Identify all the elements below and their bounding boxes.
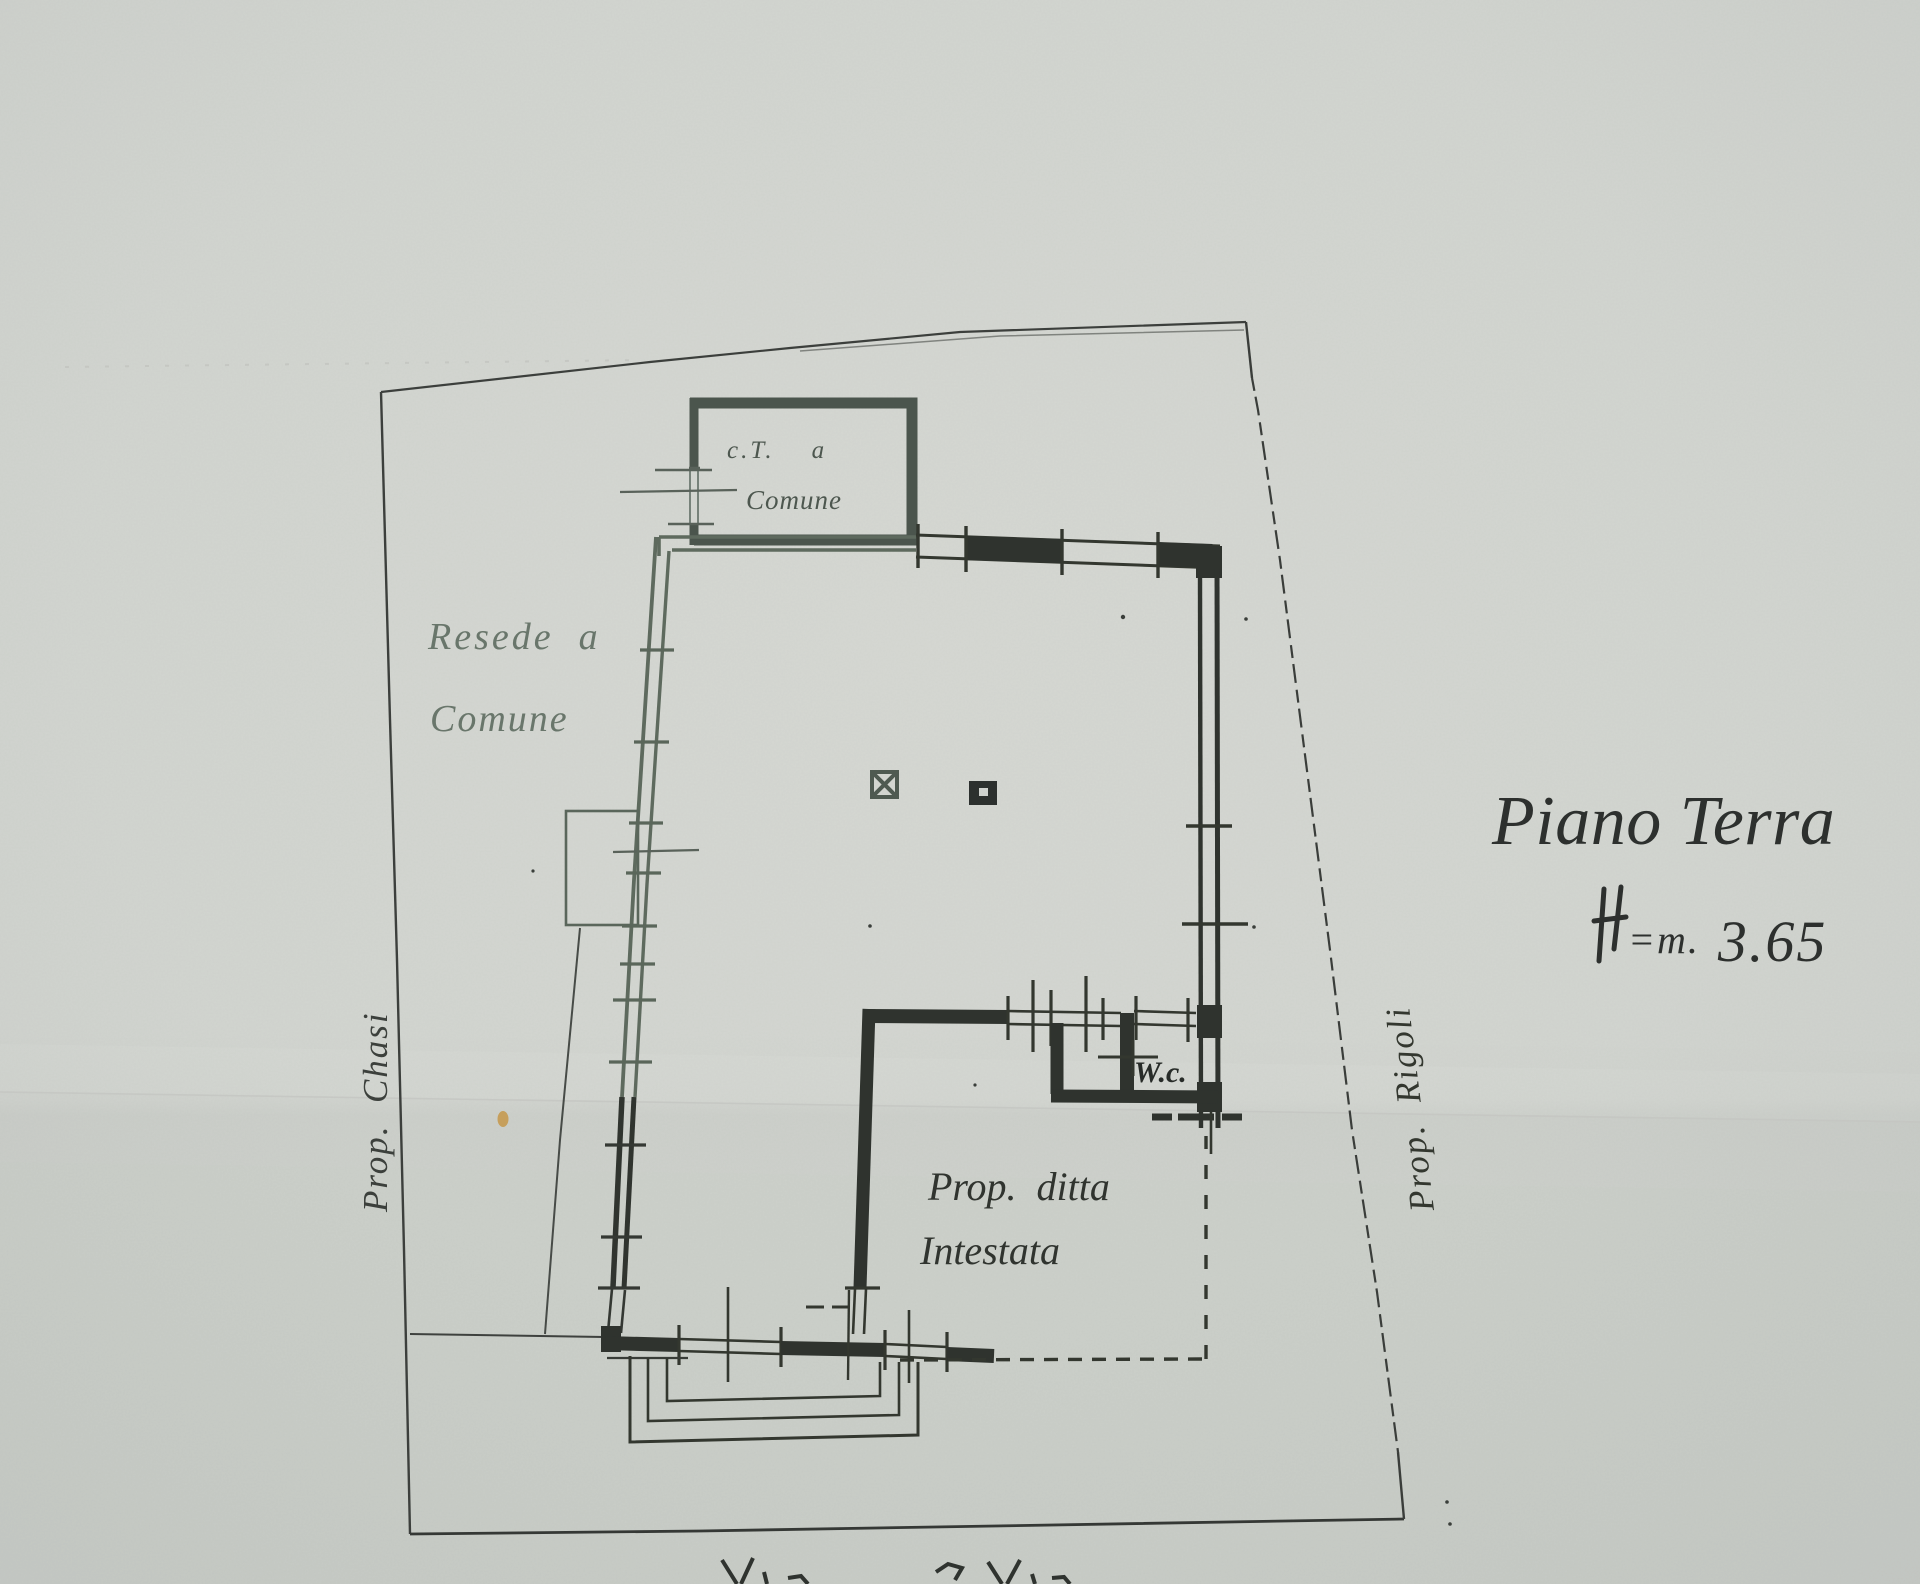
svg-text:Comune: Comune [746, 485, 842, 515]
svg-text:c.T. a: c.T. a [727, 437, 827, 464]
svg-text:Intestata: Intestata [919, 1228, 1060, 1273]
svg-text:Piano Terra: Piano Terra [1491, 783, 1835, 860]
svg-text:Prop. Chasi: Prop. Chasi [356, 1011, 395, 1213]
svg-text:Comune: Comune [430, 698, 569, 740]
svg-text:Prop. ditta: Prop. ditta [927, 1164, 1110, 1209]
svg-text:Resede a: Resede a [427, 616, 601, 658]
svg-text:W.c.: W.c. [1134, 1056, 1187, 1089]
